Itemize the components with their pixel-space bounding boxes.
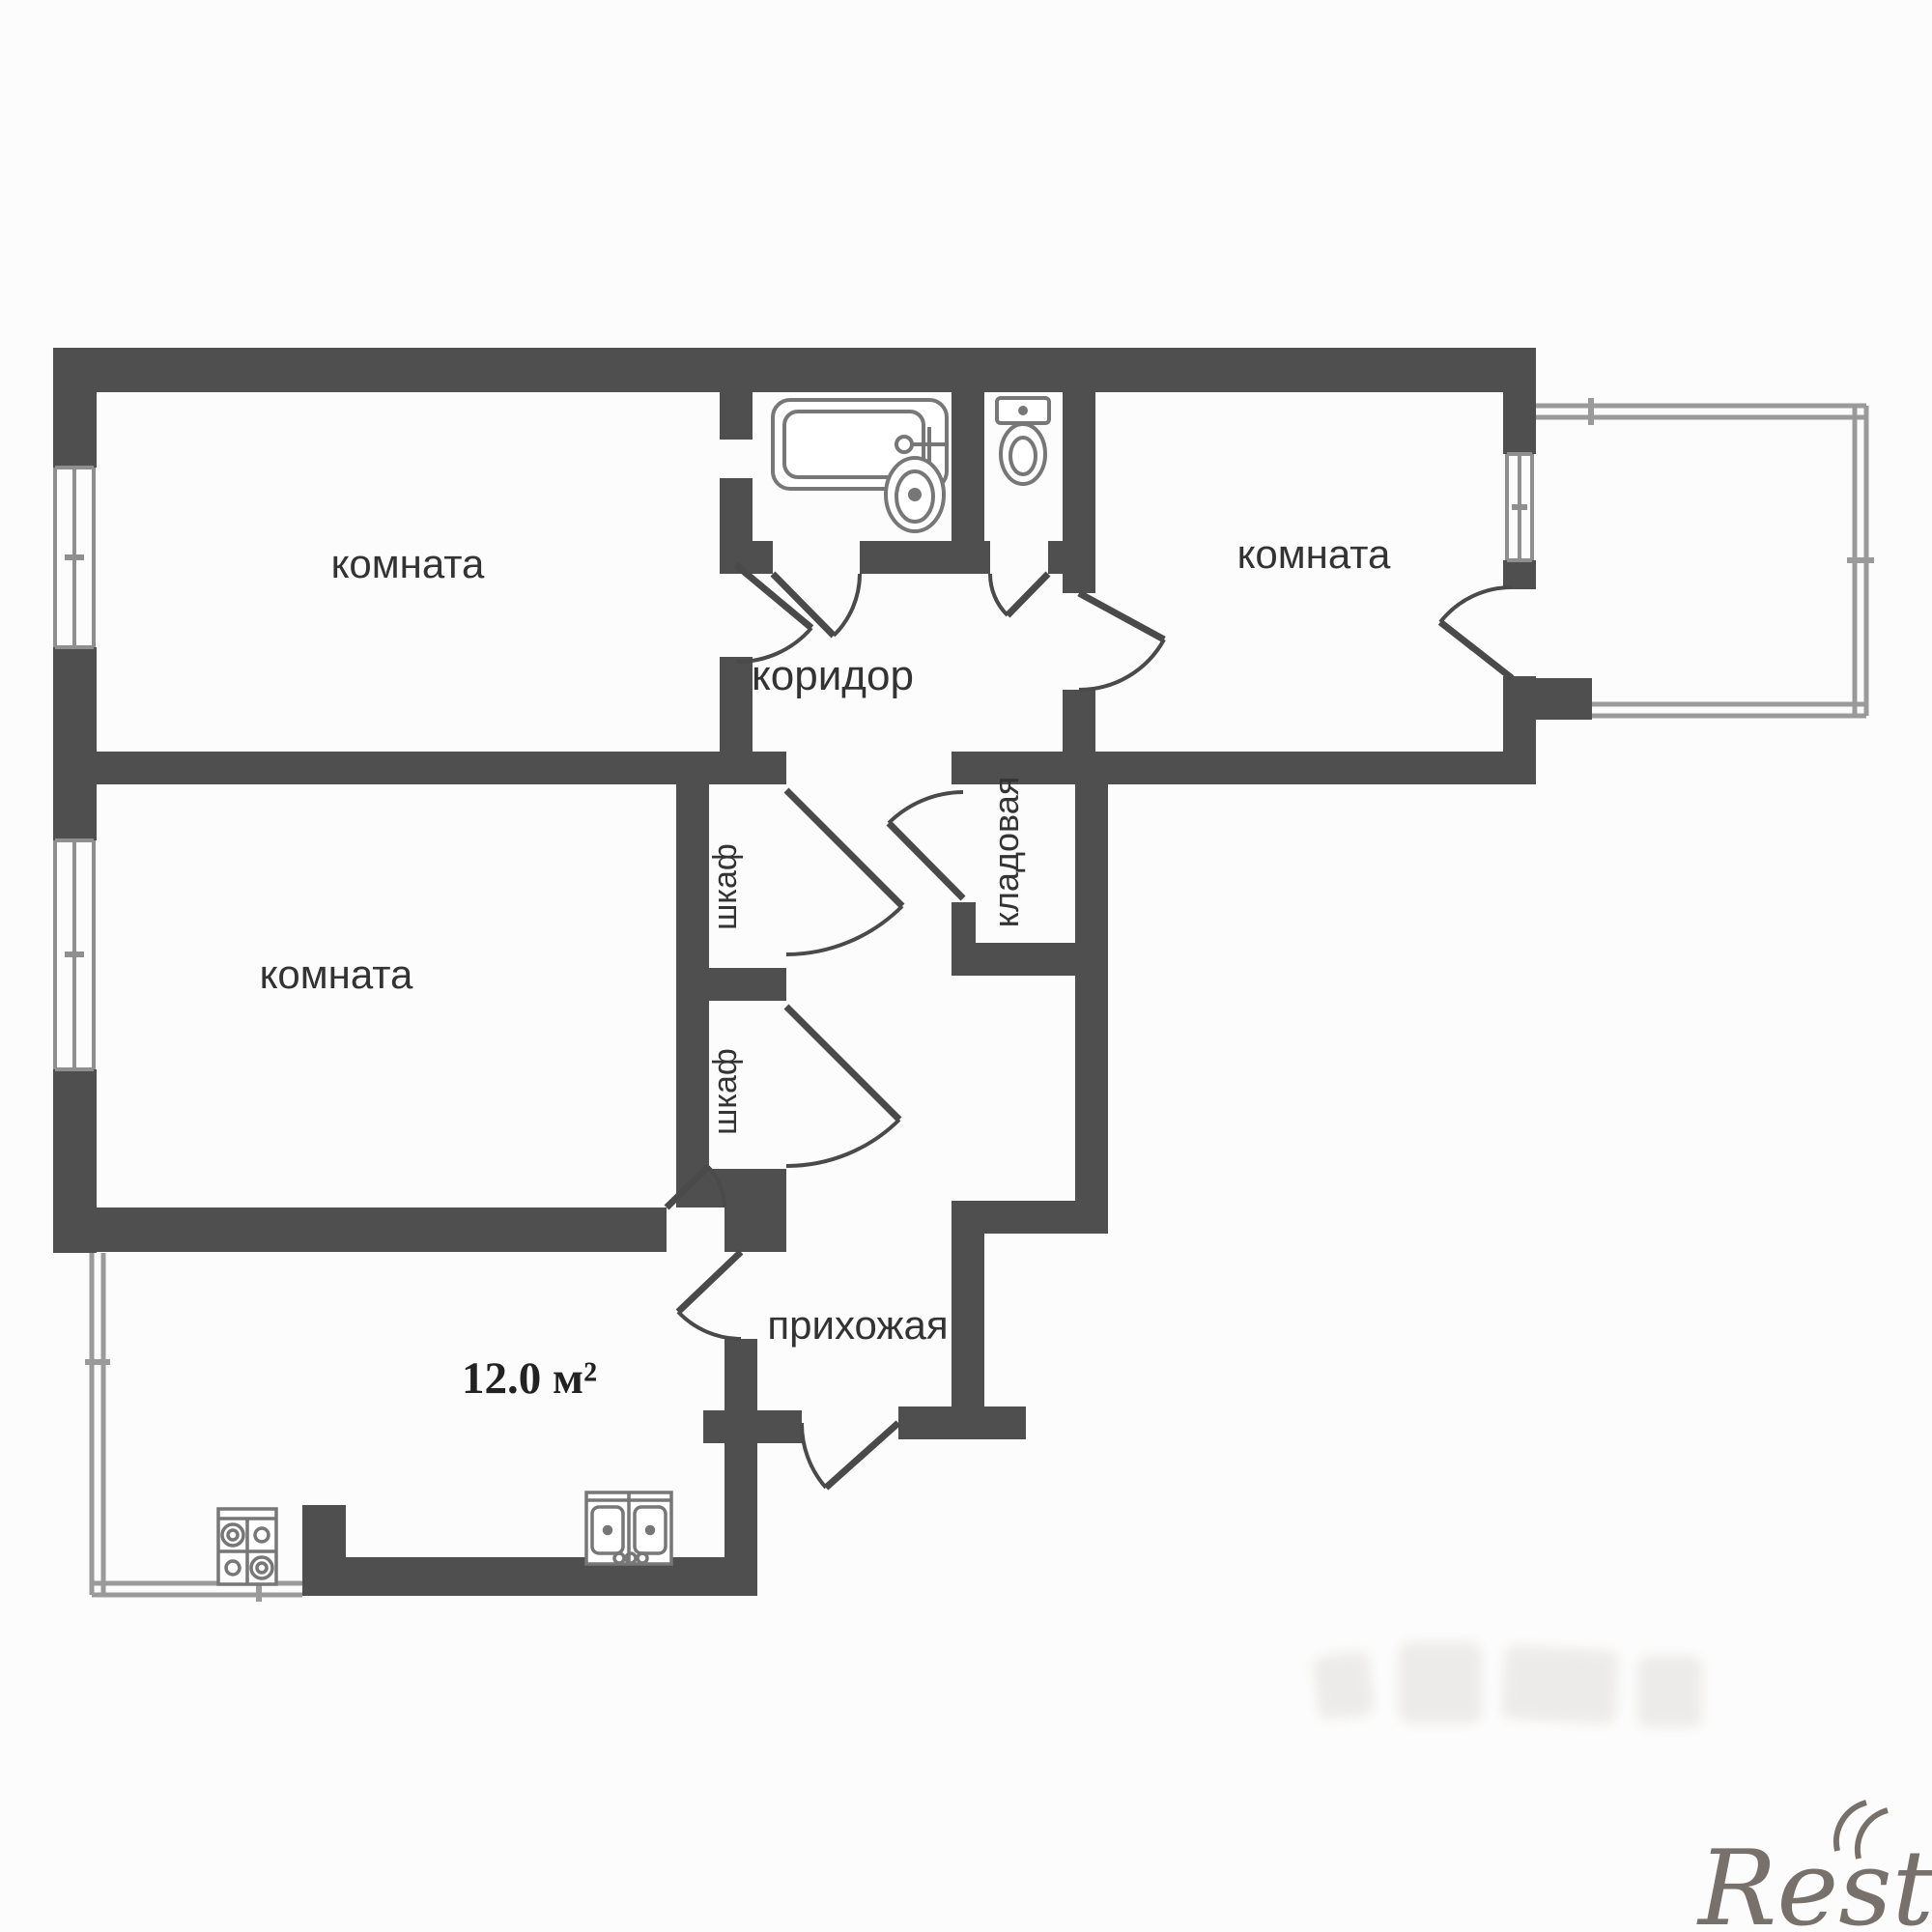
wall-right-boundary [1075,784,1108,1234]
restate-watermark-text: Restate [1696,1829,1932,1932]
room-top-right-label: комната [1237,531,1391,577]
door-closet-upper [786,790,902,954]
kitchen-sink-icon [586,1492,671,1564]
wall-top [53,348,1536,392]
balcony-outline [1536,398,1874,716]
window-room3-icon [1507,454,1532,560]
wall-mid-left [53,752,786,784]
kitchen-area-label: 12.0 м² [462,1353,597,1404]
wall-balcony-stub [1503,678,1592,720]
bath-sink-icon [886,458,944,531]
door-pantry [889,792,963,898]
door-entrance [802,1423,898,1488]
toilet-icon [997,398,1049,484]
hallway-label: прихожая [767,1302,948,1348]
door-balcony [1440,587,1512,678]
wall-bath-wc-divider [952,392,984,541]
floor-plan-canvas: комната комната комната коридор шкаф шка… [0,0,1932,1932]
wall-room2-bottom [53,1207,667,1252]
wall-kitchen-bottom [346,1557,757,1596]
door-closet-lower [786,1007,899,1166]
door-room3 [1079,593,1164,690]
wall-left-upper [53,348,97,468]
door-wc [990,574,1048,615]
door-kitchen [678,1252,741,1339]
ghost-watermark-artifact [1313,1642,1702,1727]
room-middle-left-label: комната [260,952,413,997]
floor-plan-page: комната комната комната коридор шкаф шка… [0,0,1932,1932]
stove-icon [218,1509,276,1584]
window-room2-icon [55,840,94,1069]
corridor-label: коридор [752,652,914,699]
restate-watermark: Restate [1696,1803,1932,1932]
pantry-label: кладовая [986,777,1026,927]
wall-mid-right [952,752,1536,784]
window-room1-icon [55,468,94,647]
room-top-left-label: комната [331,541,485,586]
closet-upper-label: шкаф [707,843,744,930]
closet-lower-label: шкаф [707,1048,744,1135]
wall-left-middle [53,647,97,840]
